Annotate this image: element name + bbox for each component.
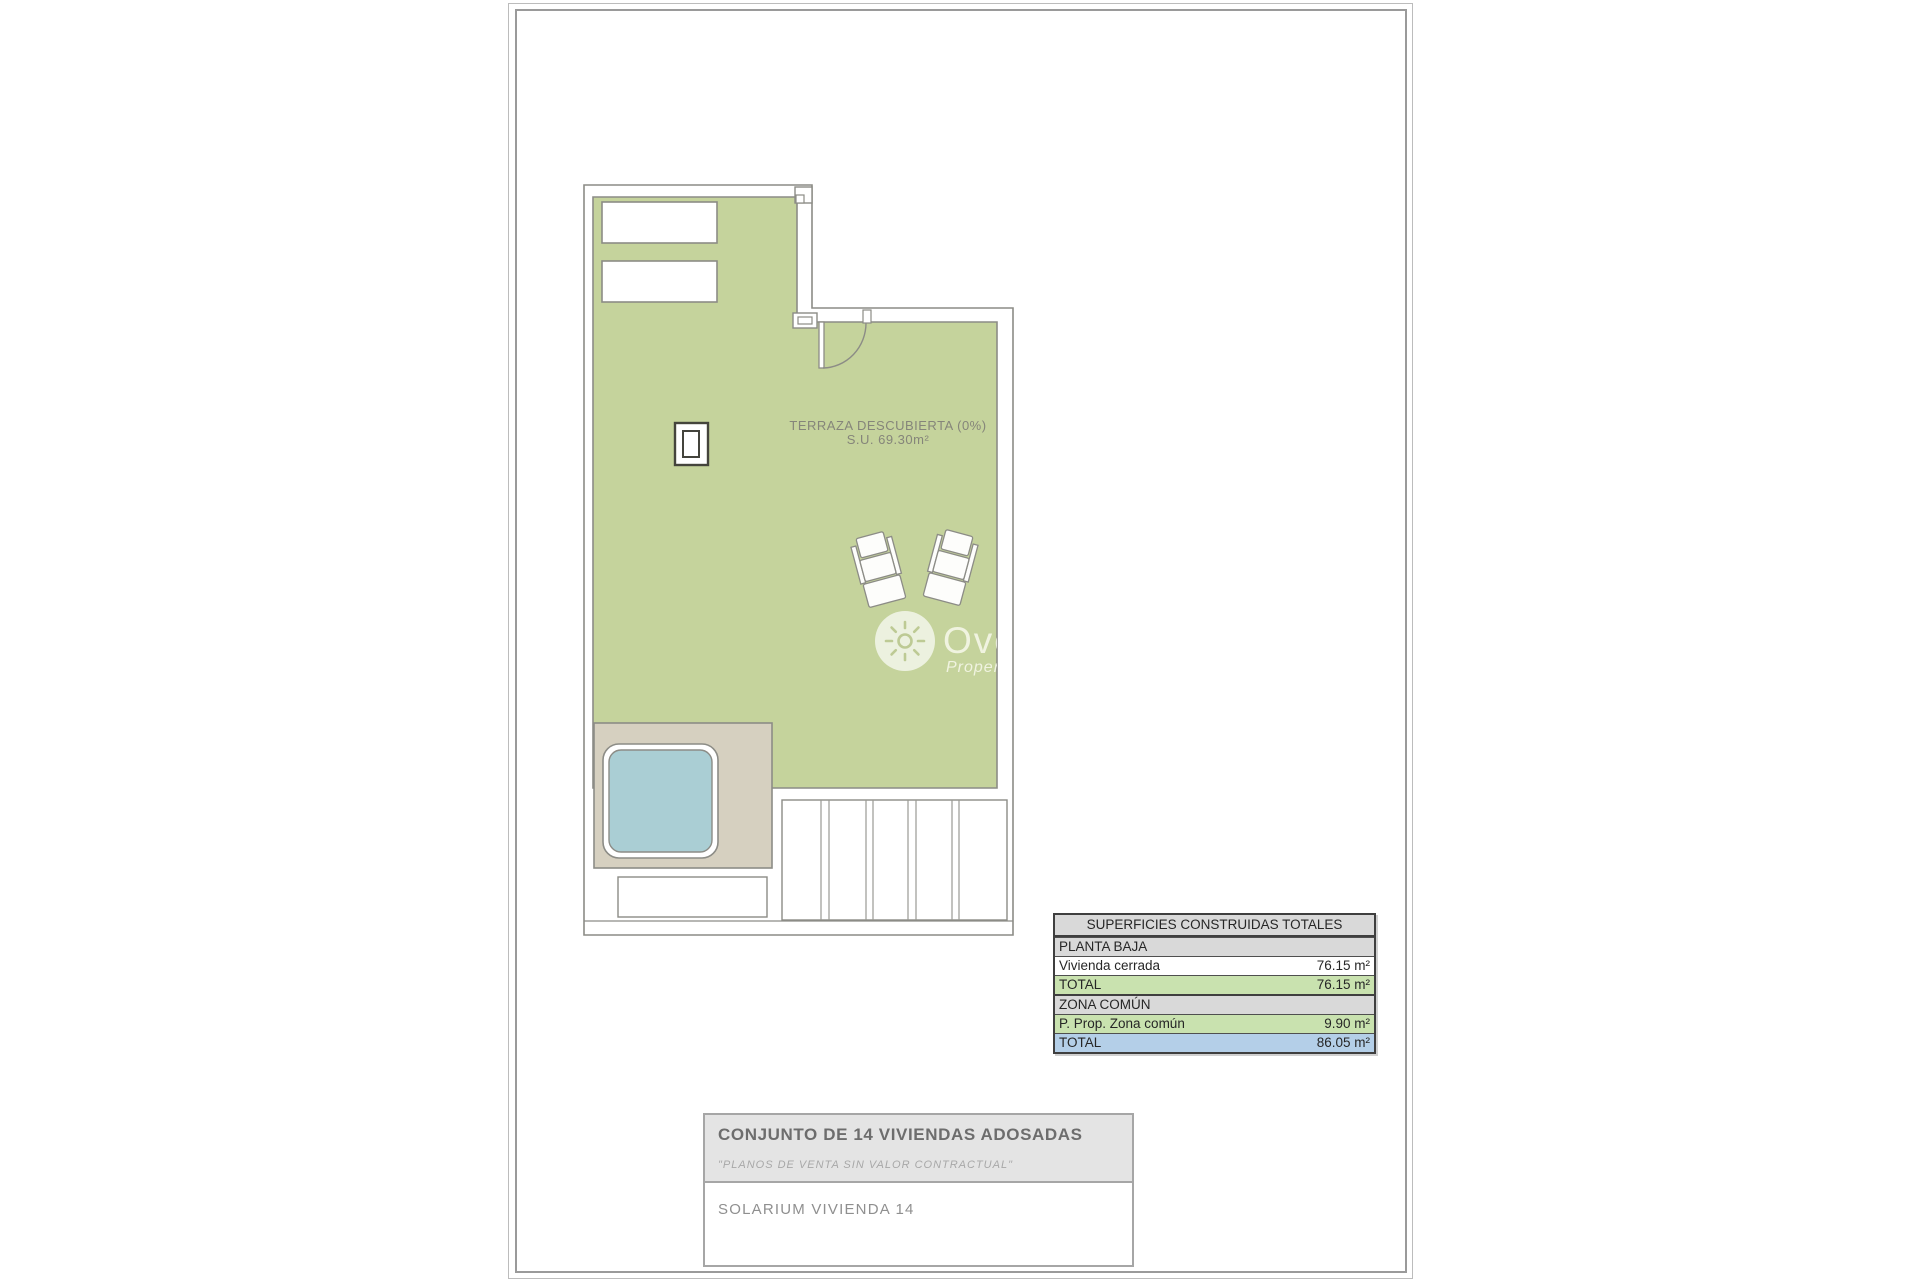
terrace-label: TERRAZA DESCUBIERTA (0%) xyxy=(789,418,986,433)
surfaces-table-header: SUPERFICIES CONSTRUIDAS TOTALES xyxy=(1055,915,1374,937)
title-block-header: CONJUNTO DE 14 VIVIENDAS ADOSADAS "PLANO… xyxy=(705,1115,1132,1183)
table-row: TOTAL 86.05 m² xyxy=(1055,1033,1374,1052)
surfaces-table: SUPERFICIES CONSTRUIDAS TOTALES PLANTA B… xyxy=(1053,913,1376,1054)
pool-water xyxy=(609,750,712,852)
table-row: ZONA COMÚN xyxy=(1055,994,1374,1014)
terrace-area-label: S.U. 69.30m² xyxy=(847,432,930,447)
row-label: P. Prop. Zona común xyxy=(1055,1015,1324,1033)
disclaimer-text: "PLANOS DE VENTA SIN VALOR CONTRACTUAL" xyxy=(718,1159,1132,1171)
skylight-rect-1 xyxy=(602,202,717,243)
table-row: PLANTA BAJA xyxy=(1055,937,1374,956)
row-value: 76.15 m² xyxy=(1317,976,1374,994)
table-row: TOTAL 76.15 m² xyxy=(1055,975,1374,994)
watermark: Overse Property M xyxy=(875,611,1074,676)
row-label: PLANTA BAJA xyxy=(1055,938,1370,956)
corner-column-inner xyxy=(796,195,804,203)
plan-sheet-page: TERRAZA DESCUBIERTA (0%) S.U. 69.30m² xyxy=(0,0,1920,1280)
chimney-inner xyxy=(683,431,699,457)
skylight-rect-2 xyxy=(602,261,717,302)
table-row: P. Prop. Zona común 9.90 m² xyxy=(1055,1014,1374,1033)
row-value: 9.90 m² xyxy=(1324,1015,1374,1033)
project-title: CONJUNTO DE 14 VIVIENDAS ADOSADAS xyxy=(718,1125,1132,1145)
floor-plan-drawing: TERRAZA DESCUBIERTA (0%) S.U. 69.30m² xyxy=(0,0,1920,1280)
door-leaf xyxy=(819,322,824,368)
row-label: TOTAL xyxy=(1055,976,1317,994)
row-value: 86.05 m² xyxy=(1317,1034,1374,1052)
door-column-inner xyxy=(798,317,812,324)
row-label: Vivienda cerrada xyxy=(1055,957,1317,975)
row-value: 76.15 m² xyxy=(1317,957,1374,975)
row-value xyxy=(1370,938,1374,956)
title-block: CONJUNTO DE 14 VIVIENDAS ADOSADAS "PLANO… xyxy=(703,1113,1134,1267)
row-value xyxy=(1370,996,1374,1014)
door-jamb xyxy=(863,310,871,323)
row-label: ZONA COMÚN xyxy=(1055,996,1370,1014)
table-row: Vivienda cerrada 76.15 m² xyxy=(1055,956,1374,975)
drawing-title: SOLARIUM VIVIENDA 14 xyxy=(718,1201,1132,1218)
row-label: TOTAL xyxy=(1055,1034,1317,1052)
sun-icon xyxy=(875,611,935,671)
title-block-body: SOLARIUM VIVIENDA 14 xyxy=(705,1183,1132,1218)
slat-panel xyxy=(782,800,1007,920)
watermark-tagline: Property M xyxy=(946,659,1034,676)
bottom-left-box xyxy=(618,877,767,917)
